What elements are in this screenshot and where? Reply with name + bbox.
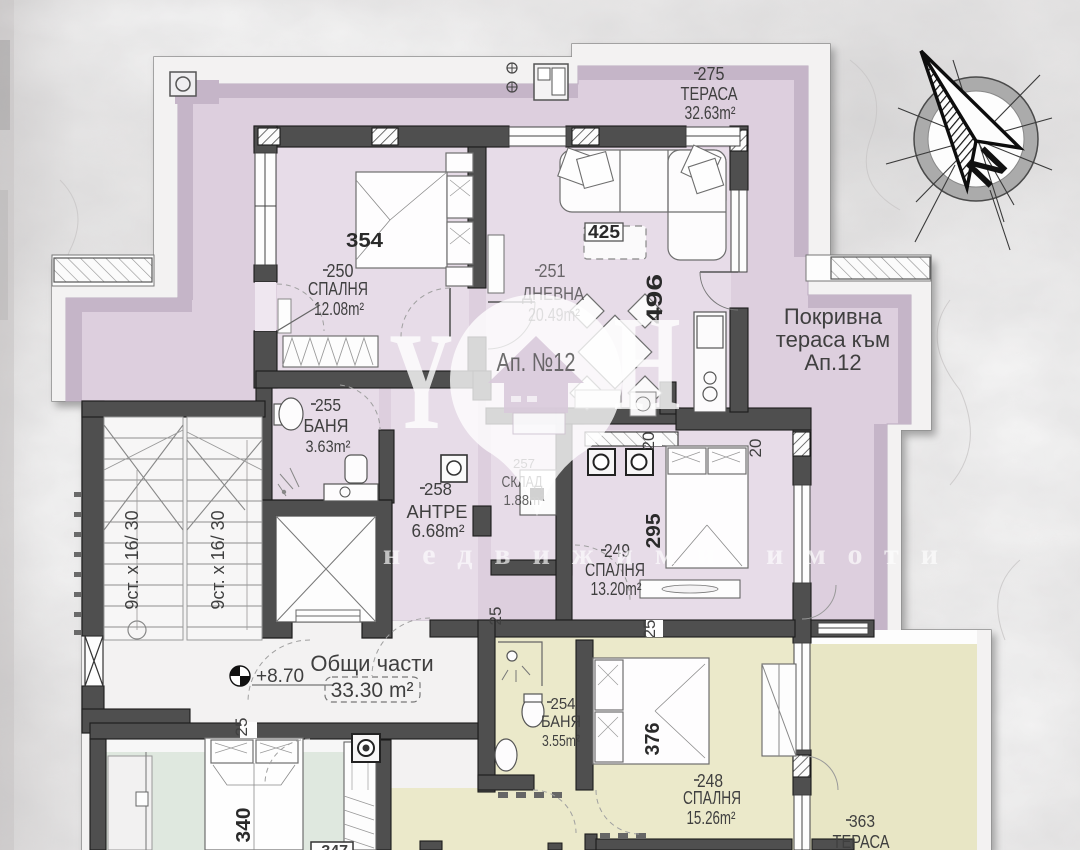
svg-text:20: 20 bbox=[746, 439, 765, 458]
svg-text:12.08m²: 12.08m² bbox=[314, 299, 364, 319]
svg-text:3.55m²: 3.55m² bbox=[542, 733, 581, 750]
svg-text:254: 254 bbox=[551, 696, 576, 713]
svg-text:Покривна: Покривна bbox=[784, 304, 883, 329]
svg-text:255: 255 bbox=[315, 395, 341, 415]
svg-text:Ап. №12: Ап. №12 bbox=[497, 347, 576, 377]
svg-text:БАНЯ: БАНЯ bbox=[541, 713, 581, 731]
svg-text:354: 354 bbox=[346, 230, 384, 252]
svg-text:Y: Y bbox=[389, 304, 453, 459]
svg-text:+8.70: +8.70 bbox=[256, 666, 304, 687]
svg-text:Общи части: Общи части bbox=[310, 651, 433, 676]
svg-text:15.26m²: 15.26m² bbox=[687, 808, 736, 828]
svg-text:340: 340 bbox=[233, 808, 255, 843]
svg-text:25: 25 bbox=[232, 718, 251, 737]
svg-text:недвижими имоти: недвижими имоти bbox=[383, 538, 960, 571]
svg-text:тераса към: тераса към bbox=[776, 327, 890, 352]
svg-text:-347: -347 bbox=[316, 843, 348, 850]
svg-text:250: 250 bbox=[327, 260, 354, 281]
svg-text:33.30 m²: 33.30 m² bbox=[331, 679, 414, 702]
svg-text:ТЕРАСА: ТЕРАСА bbox=[833, 832, 890, 850]
svg-text:32.63m²: 32.63m² bbox=[685, 103, 736, 123]
svg-text:9ст. х 16/ 30: 9ст. х 16/ 30 bbox=[208, 510, 228, 609]
svg-text:13.20m²: 13.20m² bbox=[591, 579, 642, 599]
svg-text:25: 25 bbox=[486, 607, 505, 626]
svg-text:9ст. х 16/ 30: 9ст. х 16/ 30 bbox=[122, 510, 142, 609]
svg-text:H: H bbox=[614, 289, 681, 439]
svg-text:СПАЛНЯ: СПАЛНЯ bbox=[308, 279, 368, 299]
svg-text:СПАЛНЯ: СПАЛНЯ bbox=[683, 788, 741, 808]
svg-text:425: 425 bbox=[588, 222, 620, 242]
svg-text:376: 376 bbox=[642, 723, 664, 756]
svg-text:251: 251 bbox=[539, 260, 566, 281]
svg-text:258: 258 bbox=[424, 479, 452, 499]
svg-text:БАНЯ: БАНЯ bbox=[304, 416, 349, 436]
svg-text:АНТРЕ: АНТРЕ bbox=[407, 501, 468, 522]
svg-text:Ап.12: Ап.12 bbox=[804, 350, 861, 375]
svg-text:275: 275 bbox=[698, 63, 725, 84]
svg-text:ТЕРАСА: ТЕРАСА bbox=[681, 84, 738, 104]
svg-text:3.63m²: 3.63m² bbox=[306, 437, 351, 456]
svg-text:363: 363 bbox=[849, 811, 875, 831]
svg-text:25: 25 bbox=[640, 620, 659, 639]
